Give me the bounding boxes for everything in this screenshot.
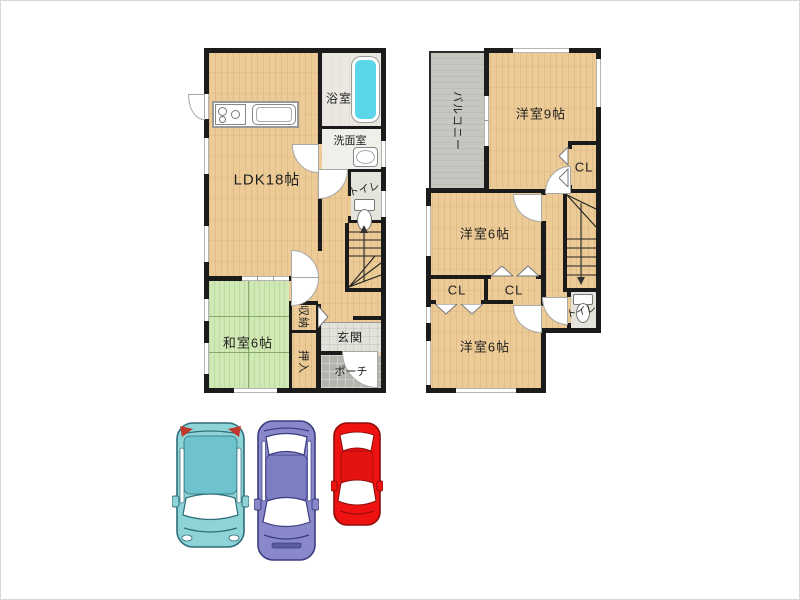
stairs-floor2 bbox=[567, 193, 596, 288]
storage-label: 収納 bbox=[296, 305, 312, 329]
wall bbox=[481, 300, 513, 304]
wall bbox=[318, 126, 386, 129]
washroom-label: 洗面室 bbox=[334, 132, 367, 148]
bifold-door-cl-left-icon bbox=[435, 304, 483, 315]
tatami-grid-h1 bbox=[209, 316, 289, 317]
wall bbox=[318, 53, 322, 126]
burner bbox=[219, 116, 226, 123]
wall bbox=[541, 328, 601, 333]
purple-sedan-car bbox=[254, 419, 319, 562]
cl-left-label: CL bbox=[448, 283, 467, 298]
burner bbox=[231, 110, 240, 119]
window bbox=[426, 341, 431, 385]
bath-label: 浴室 bbox=[326, 90, 352, 107]
cl-top-label: CL bbox=[575, 160, 594, 175]
window bbox=[204, 138, 209, 174]
sliding-door-tick bbox=[257, 276, 258, 281]
cl-right-label: CL bbox=[505, 283, 524, 298]
window bbox=[204, 343, 209, 374]
wall bbox=[318, 129, 322, 144]
western9-label: 洋室9帖 bbox=[516, 104, 566, 123]
western6-mid-label: 洋室6帖 bbox=[460, 224, 510, 243]
entrance-step-line bbox=[321, 322, 381, 323]
bifold-door-cl-right-icon bbox=[491, 266, 539, 277]
ldk-label: LDK18帖 bbox=[234, 169, 301, 190]
window bbox=[204, 226, 209, 262]
window bbox=[596, 59, 601, 107]
bifold-door-storage-icon bbox=[318, 306, 329, 328]
sliding-door bbox=[242, 276, 289, 281]
bifold-door-cl-top-icon bbox=[559, 147, 569, 187]
entrance-label: 玄関 bbox=[337, 329, 363, 346]
wall bbox=[541, 193, 546, 195]
burner bbox=[218, 107, 227, 116]
window bbox=[234, 388, 277, 393]
kitchen-sink-basin bbox=[256, 107, 292, 122]
wall bbox=[345, 288, 386, 292]
tatami-room-label: 和室6帖 bbox=[223, 333, 273, 352]
window bbox=[456, 388, 516, 393]
wall bbox=[353, 316, 386, 320]
wall bbox=[289, 301, 292, 388]
window bbox=[426, 307, 431, 323]
kitchen-door-opening bbox=[204, 94, 209, 119]
wall bbox=[209, 276, 242, 281]
window bbox=[513, 48, 569, 53]
wall bbox=[321, 351, 343, 355]
floorplan-canvas: LDK18帖 浴室 洗面室 トイレ 和室6帖 収納 押入 玄関 ポーチ bbox=[0, 0, 800, 600]
wall bbox=[426, 188, 488, 193]
wall bbox=[541, 221, 546, 279]
window bbox=[381, 191, 386, 217]
wall bbox=[568, 141, 601, 145]
sliding-door-tick bbox=[273, 276, 274, 281]
wall bbox=[426, 275, 491, 279]
washbasin-bowl bbox=[356, 150, 375, 164]
wall bbox=[567, 323, 571, 328]
window bbox=[426, 206, 431, 256]
wall bbox=[541, 331, 546, 393]
western6-btm-label: 洋室6帖 bbox=[460, 337, 510, 356]
balcony-label: バルコニー bbox=[450, 91, 466, 151]
tatami-grid-h2 bbox=[209, 352, 289, 353]
window bbox=[204, 299, 209, 321]
wall bbox=[289, 330, 318, 333]
stairs-floor1 bbox=[349, 223, 381, 288]
balcony-door-tick bbox=[484, 120, 489, 121]
red-sedan-car bbox=[331, 421, 383, 527]
balcony-door-opening bbox=[484, 96, 489, 146]
wall bbox=[484, 189, 546, 193]
window bbox=[381, 141, 386, 167]
teal-suv-car bbox=[172, 420, 249, 550]
door-arc-kitchen-exterior bbox=[189, 95, 204, 119]
bathtub bbox=[352, 57, 379, 122]
porch-label: ポーチ bbox=[335, 363, 368, 379]
futon-closet-label: 押入 bbox=[296, 350, 312, 374]
wall bbox=[567, 292, 571, 297]
